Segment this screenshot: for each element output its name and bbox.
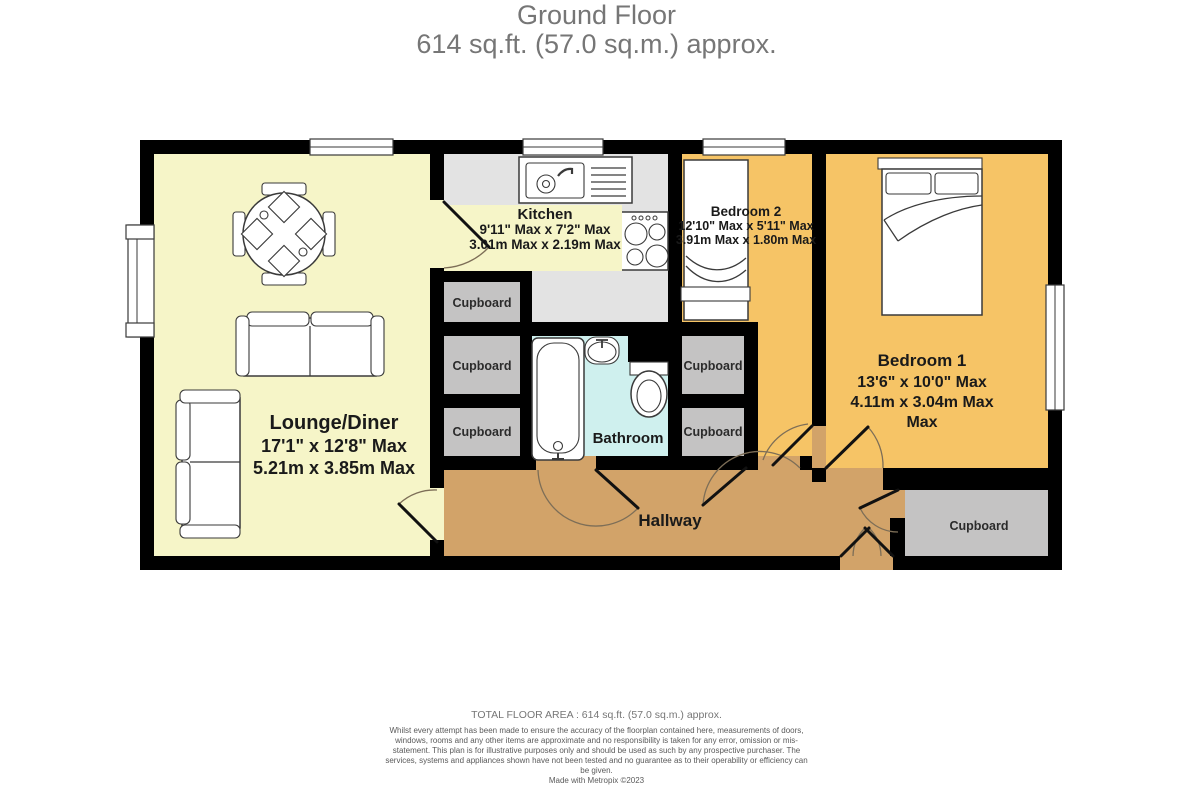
doorway-bedroom1	[826, 468, 883, 482]
kitchen-imperial: 9'11" Max x 7'2" Max	[479, 222, 611, 237]
doorway-lounge	[430, 488, 444, 540]
table-detail-1	[260, 211, 268, 219]
kitchen-name: Kitchen	[517, 206, 572, 223]
wall-hallway-b	[596, 456, 746, 470]
window-bedroom2-top	[703, 139, 785, 155]
window-kitchen-top	[523, 139, 603, 155]
window-bedroom1-right	[1046, 285, 1064, 410]
cupboard1-label: Cupboard	[452, 296, 511, 310]
metropix-credit: Made with Metropix ©2023	[0, 776, 1193, 786]
cupboard3-label: Cupboard	[452, 425, 511, 439]
bed-pillow-left	[886, 173, 931, 194]
wall-cupboard23-divider	[430, 394, 532, 408]
cupboard6-label: Cupboard	[949, 519, 1008, 533]
floorplan-canvas: Kitchen 9'11" Max x 7'2" Max 3.01m Max x…	[0, 0, 1193, 800]
wall-lounge-kitchen-a	[430, 154, 444, 200]
plan-footer: TOTAL FLOOR AREA : 614 sq.ft. (57.0 sq.m…	[0, 709, 1193, 794]
sofa-top-back-1	[247, 312, 309, 326]
burner-2	[649, 224, 665, 240]
bath-drain	[554, 442, 563, 451]
hallway-name: Hallway	[638, 511, 702, 530]
bedroom1-imperial: 13'6" x 10'0" Max	[857, 374, 987, 391]
bedroom1-metric: 4.11m x 3.04m Max	[850, 394, 993, 411]
wall-outer-bottom-left	[140, 556, 840, 570]
sofa-left-back-2	[176, 462, 190, 524]
wall-outer-bottom-right	[893, 556, 1062, 570]
toilet-seat	[637, 380, 661, 412]
wall-bedroom1-bottom	[883, 468, 1062, 490]
lounge-imperial: 17'1" x 12'8" Max	[261, 436, 407, 456]
disclaimer-text: Whilst every attempt has been made to en…	[382, 726, 812, 776]
sink-drain-inner	[543, 181, 550, 188]
sink-basin	[526, 163, 584, 198]
total-floor-area: TOTAL FLOOR AREA : 614 sq.ft. (57.0 sq.m…	[0, 709, 1193, 721]
bedroom2-imperial: 12'10" Max x 5'11" Max	[678, 219, 813, 233]
doorway-entrance	[840, 556, 893, 570]
sofa-left-back-1	[176, 400, 190, 460]
bed-double-headboard	[878, 158, 982, 169]
bathroom-boxed-block	[628, 336, 668, 362]
bedroom1-name: Bedroom 1	[878, 351, 967, 370]
window-lounge-left	[126, 225, 154, 337]
doorway-between-bedrooms	[812, 426, 826, 470]
wall-lounge-kitchen-b	[430, 268, 444, 488]
wall-outer-left	[140, 140, 154, 570]
wall-bedroom1-bedroom2	[812, 140, 826, 426]
bedroom1-metric-overflow: Max	[906, 414, 937, 431]
kitchen-metric: 3.01m Max x 2.19m Max	[469, 237, 621, 252]
wall-kitchen-bathroom	[430, 322, 758, 336]
bedroom2-metric: 3.91m Max x 1.80m Max	[676, 233, 816, 247]
sofa-left-seat	[182, 398, 240, 528]
lounge-metric: 5.21m x 3.85m Max	[253, 458, 415, 478]
window-lounge-top	[310, 139, 393, 155]
burner-3	[627, 249, 643, 265]
wall-hallway-c	[800, 456, 812, 470]
wall-bedroom1-bottom-stub	[812, 468, 826, 482]
lounge-name: Lounge/Diner	[270, 412, 399, 434]
bedroom2-name: Bedroom 2	[711, 204, 782, 219]
sofa-top-arm-left	[236, 316, 249, 376]
cupboard5-label: Cupboard	[683, 425, 742, 439]
wall-cupboard6-left	[890, 518, 905, 556]
kitchen-sink-unit	[519, 157, 632, 203]
bed-double	[878, 158, 982, 315]
sofa-top	[236, 312, 384, 376]
sofa-top-back-2	[311, 312, 373, 326]
bed-single-footboard	[681, 287, 750, 301]
stove	[620, 212, 668, 270]
burner-4	[646, 245, 668, 267]
wall-cupboards-bathroom	[520, 268, 532, 470]
cupboard2-label: Cupboard	[452, 359, 511, 373]
toilet	[630, 362, 668, 417]
sofa-top-arm-right	[371, 316, 384, 376]
floorplan-page: Ground Floor 614 sq.ft. (57.0 sq.m.) app…	[0, 0, 1193, 800]
wash-basin	[585, 337, 619, 364]
burner-1	[625, 223, 647, 245]
sofa-left	[176, 390, 240, 538]
bath-tub	[532, 338, 584, 460]
bath-inner	[537, 343, 579, 453]
table-detail-2	[299, 248, 307, 256]
bed-pillow-right	[935, 173, 978, 194]
sofa-left-arm-bottom	[180, 525, 240, 538]
wall-cupboards-bedroom2	[744, 322, 758, 470]
sofa-left-arm-top	[180, 390, 240, 403]
wall-hallway-a	[430, 456, 536, 470]
hallway-floor	[444, 470, 826, 556]
cupboard4-label: Cupboard	[683, 359, 742, 373]
bathroom-name: Bathroom	[593, 430, 664, 447]
